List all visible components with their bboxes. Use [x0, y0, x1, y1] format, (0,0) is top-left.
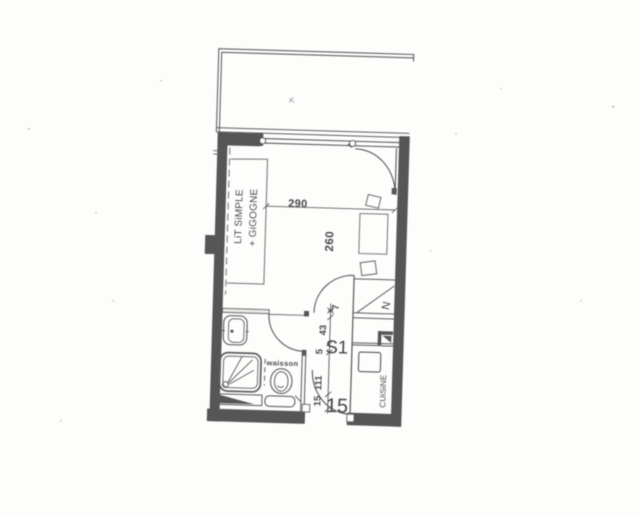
svg-text:15: 15 [325, 395, 348, 418]
svg-text:43: 43 [318, 325, 329, 336]
svg-text:CUiSiNE: CUiSiNE [378, 374, 388, 408]
svg-text:260: 260 [324, 231, 337, 252]
svg-text:15: 15 [312, 395, 323, 407]
svg-text:waisson: waisson [265, 358, 298, 368]
svg-text:111: 111 [313, 375, 324, 391]
svg-text:290: 290 [288, 198, 308, 211]
svg-text:LiT SiMPLE: LiT SiMPLE [233, 189, 246, 244]
svg-text:S1: S1 [325, 336, 348, 358]
svg-text:7: 7 [331, 304, 342, 310]
svg-text:+ GiGOGNE: + GiGOGNE [247, 188, 260, 246]
